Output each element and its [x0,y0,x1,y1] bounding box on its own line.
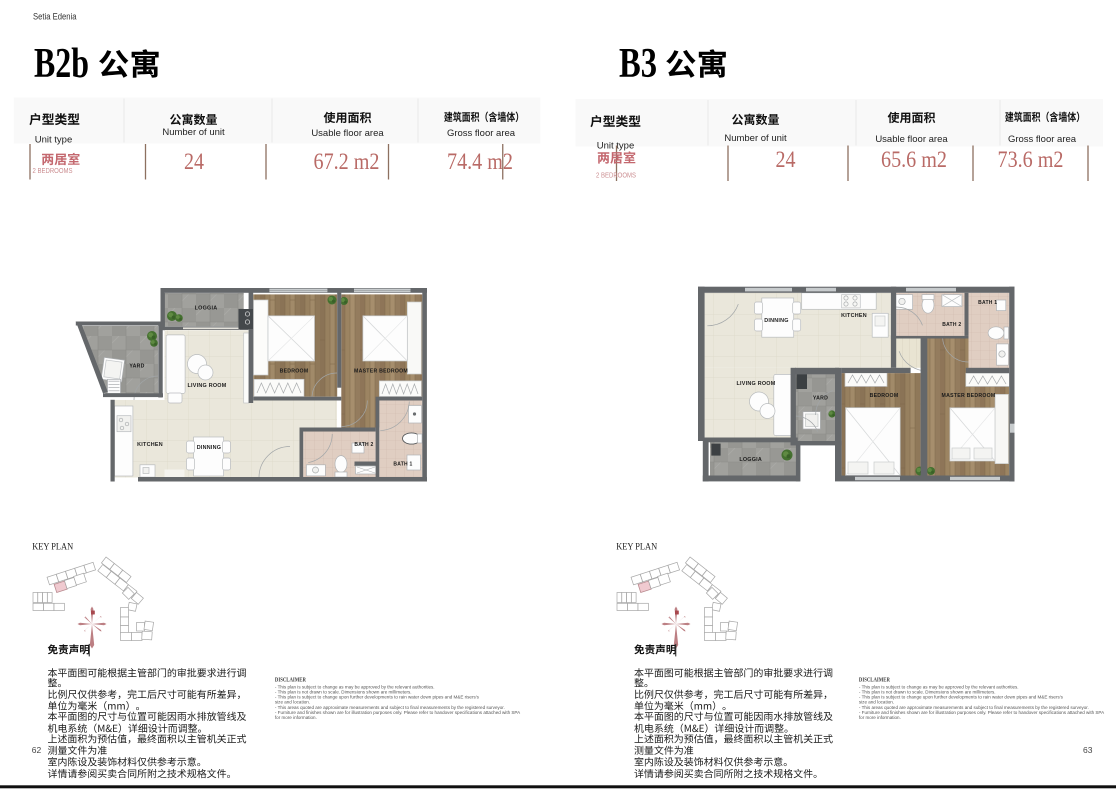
svg-text:Number of unit: Number of unit [162,127,225,138]
svg-text:B2b: B2b [34,41,89,87]
svg-text:YARD: YARD [129,364,144,370]
svg-text:2 BEDROOMS: 2 BEDROOMS [596,171,636,180]
svg-text:KEY PLAN: KEY PLAN [32,542,73,552]
svg-text:KITCHEN: KITCHEN [137,442,163,448]
svg-text:Unit type: Unit type [35,135,73,146]
svg-text:73.6 m2: 73.6 m2 [998,147,1064,172]
svg-text:DINNING: DINNING [197,445,222,451]
svg-text:LIVING ROOM: LIVING ROOM [188,383,227,389]
svg-text:KEY PLAN: KEY PLAN [616,542,657,552]
svg-text:BATH 1: BATH 1 [978,300,997,306]
svg-text:65.6 m2: 65.6 m2 [881,147,947,172]
svg-text:BATH 1: BATH 1 [393,462,412,468]
svg-text:DINNING: DINNING [764,318,789,324]
svg-text:LOGGIA: LOGGIA [195,306,218,312]
svg-text:BEDROOM: BEDROOM [870,393,899,399]
svg-text:Unit type: Unit type [597,141,635,152]
svg-text:24: 24 [184,149,204,174]
svg-text:B3: B3 [619,41,657,87]
svg-text:Setia Edenia: Setia Edenia [33,12,77,22]
svg-text:BATH 2: BATH 2 [354,442,373,448]
svg-text:67.2 m2: 67.2 m2 [314,149,380,174]
svg-text:Gross floor area: Gross floor area [1008,134,1077,145]
svg-text:BATH 2: BATH 2 [942,322,961,328]
svg-text:63: 63 [1083,745,1093,755]
svg-text:YARD: YARD [813,396,828,402]
svg-text:BEDROOM: BEDROOM [280,369,309,375]
svg-text:MASTER BEDROOM: MASTER BEDROOM [354,369,408,375]
svg-text:Gross floor area: Gross floor area [447,128,516,139]
svg-text:KITCHEN: KITCHEN [841,313,867,319]
svg-text:2 BEDROOMS: 2 BEDROOMS [33,166,73,175]
svg-text:62: 62 [32,745,42,755]
svg-text:24: 24 [776,147,796,172]
svg-text:Usable floor area: Usable floor area [875,134,948,145]
svg-text:Number of unit: Number of unit [724,133,787,144]
svg-text:Usable floor area: Usable floor area [311,128,384,139]
svg-text:MASTER BEDROOM: MASTER BEDROOM [942,393,996,399]
svg-text:LOGGIA: LOGGIA [739,457,762,463]
svg-text:LIVING ROOM: LIVING ROOM [737,381,776,387]
svg-text:74.4 m2: 74.4 m2 [447,149,513,174]
